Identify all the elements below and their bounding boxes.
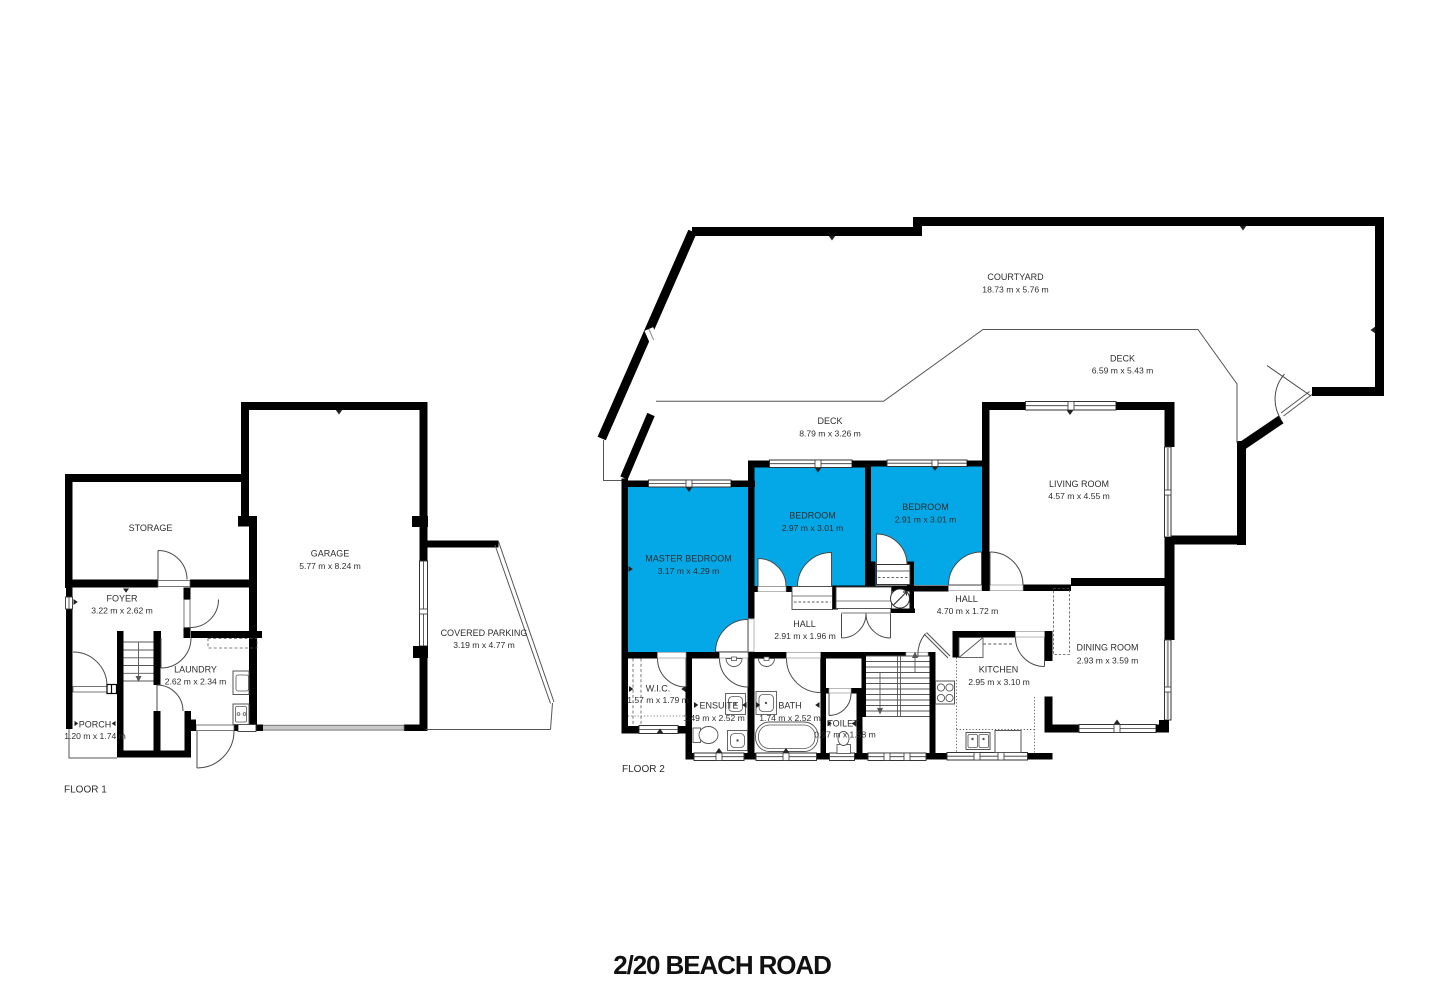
svg-text:8.79 m x 3.26 m: 8.79 m x 3.26 m	[799, 429, 861, 439]
svg-text:0.97 m x 1.58 m: 0.97 m x 1.58 m	[814, 730, 876, 740]
svg-text:2.91 m x 1.96 m: 2.91 m x 1.96 m	[774, 631, 836, 641]
svg-text:BEDROOM: BEDROOM	[902, 502, 949, 512]
svg-text:STORAGE: STORAGE	[129, 523, 173, 533]
svg-text:GARAGE: GARAGE	[311, 549, 350, 559]
svg-text:2.95 m x 3.10 m: 2.95 m x 3.10 m	[968, 677, 1030, 687]
svg-text:1.74 m x 2.52 m: 1.74 m x 2.52 m	[759, 713, 821, 723]
svg-text:2.62 m x 2.34 m: 2.62 m x 2.34 m	[165, 677, 227, 687]
svg-text:1.49 m x 2.52 m: 1.49 m x 2.52 m	[683, 713, 745, 723]
svg-text:4.57 m x 4.55 m: 4.57 m x 4.55 m	[1048, 491, 1110, 501]
svg-text:PORCH: PORCH	[79, 720, 112, 730]
svg-text:3.17 m x 4.29 m: 3.17 m x 4.29 m	[658, 566, 720, 576]
svg-text:1.20 m x 1.74 m: 1.20 m x 1.74 m	[64, 731, 126, 741]
svg-text:HALL: HALL	[793, 619, 816, 629]
svg-text:FOYER: FOYER	[106, 594, 138, 604]
svg-text:LAUNDRY: LAUNDRY	[174, 665, 217, 675]
svg-text:3.19 m x 4.77 m: 3.19 m x 4.77 m	[453, 640, 515, 650]
svg-text:BEDROOM: BEDROOM	[789, 511, 836, 521]
svg-text:MASTER BEDROOM: MASTER BEDROOM	[645, 554, 732, 564]
svg-text:COVERED PARKING: COVERED PARKING	[441, 628, 528, 638]
svg-text:2.93 m x 3.59 m: 2.93 m x 3.59 m	[1077, 656, 1139, 666]
svg-text:LIVING ROOM: LIVING ROOM	[1049, 479, 1109, 489]
svg-text:5.77 m x 8.24 m: 5.77 m x 8.24 m	[299, 561, 361, 571]
svg-text:6.59 m x 5.43 m: 6.59 m x 5.43 m	[1092, 366, 1154, 376]
svg-text:2.91 m x 3.01 m: 2.91 m x 3.01 m	[895, 515, 957, 525]
svg-text:4.70 m x 1.72 m: 4.70 m x 1.72 m	[937, 606, 999, 616]
svg-text:KITCHEN: KITCHEN	[979, 665, 1019, 675]
svg-text:18.73 m x 5.76 m: 18.73 m x 5.76 m	[982, 285, 1048, 295]
svg-text:2/20 BEACH ROAD: 2/20 BEACH ROAD	[613, 950, 831, 980]
svg-text:DECK: DECK	[1110, 354, 1135, 364]
svg-text:1.57 m x 1.79 m: 1.57 m x 1.79 m	[627, 695, 689, 705]
svg-text:DECK: DECK	[817, 416, 842, 426]
svg-text:ENSUITE: ENSUITE	[699, 701, 738, 711]
svg-text:COURTYARD: COURTYARD	[987, 272, 1044, 282]
svg-text:FLOOR 1: FLOOR 1	[64, 785, 107, 796]
svg-text:W.I.C.: W.I.C.	[646, 684, 671, 694]
svg-text:3.22 m x 2.62 m: 3.22 m x 2.62 m	[91, 606, 153, 616]
svg-text:FLOOR 2: FLOOR 2	[622, 764, 665, 775]
svg-text:2.97 m x 3.01 m: 2.97 m x 3.01 m	[782, 523, 844, 533]
svg-text:BATH: BATH	[778, 701, 801, 711]
svg-text:TOILET: TOILET	[827, 719, 859, 729]
svg-text:DINING ROOM: DINING ROOM	[1077, 643, 1139, 653]
svg-text:HALL: HALL	[955, 594, 978, 604]
